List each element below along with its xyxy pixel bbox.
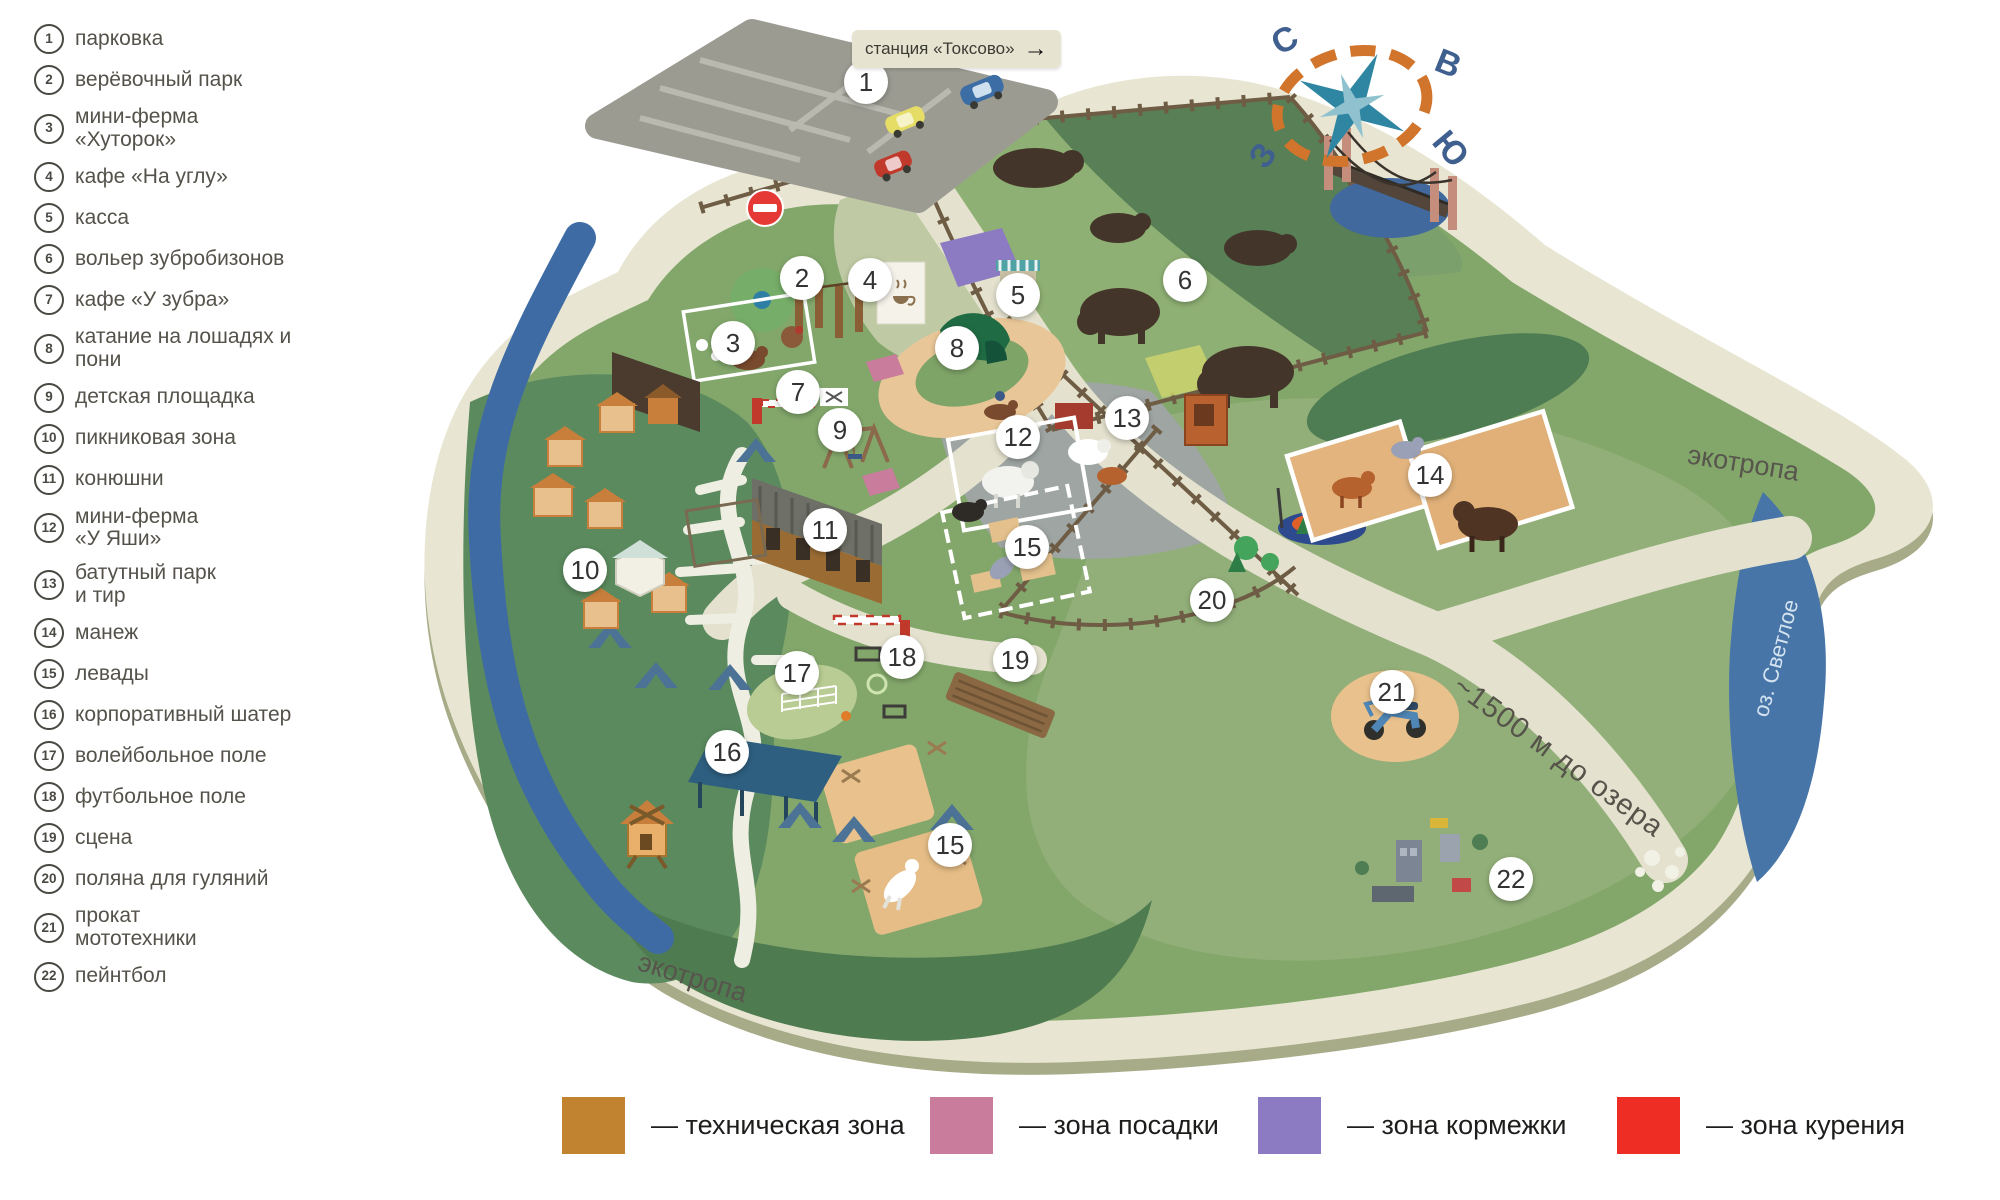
map-marker-6: 6 [1163, 258, 1207, 302]
map-marker-12: 12 [996, 415, 1040, 459]
zone-color-swatch [1258, 1097, 1321, 1154]
compass-north: С [1265, 18, 1305, 63]
map-marker-10: 10 [563, 548, 607, 592]
map-marker-15: 15 [1005, 525, 1049, 569]
map-canvas: С В З Ю экотропа экотропа оз. Светлое ~1… [0, 0, 2000, 1200]
map-marker-13: 13 [1105, 396, 1149, 440]
map-marker-4: 4 [848, 258, 892, 302]
map-marker-21: 21 [1370, 670, 1414, 714]
arrow-right-icon: → [1024, 37, 1048, 61]
map-marker-3: 3 [711, 321, 755, 365]
station-sign: станция «Токсово» → [852, 30, 1061, 68]
zone-legend-item-2: — зона посадки [930, 1097, 1219, 1154]
map-marker-11: 11 [803, 508, 847, 552]
zone-color-swatch [1617, 1097, 1680, 1154]
map-marker-16: 16 [705, 730, 749, 774]
zone-legend-item-4: — зона курения [1617, 1097, 1905, 1154]
map-marker-15: 15 [928, 823, 972, 867]
zone-legend-item-1: — техническая зона [562, 1097, 905, 1154]
map-marker-2: 2 [780, 256, 824, 300]
map-marker-8: 8 [935, 326, 979, 370]
station-sign-label: станция «Токсово» [865, 39, 1015, 59]
zone-legend-item-3: — зона кормежки [1258, 1097, 1566, 1154]
no-entry-sign [747, 190, 783, 226]
map-marker-19: 19 [993, 638, 1037, 682]
map-marker-5: 5 [996, 273, 1040, 317]
map-marker-17: 17 [775, 651, 819, 695]
map-marker-9: 9 [818, 408, 862, 452]
zone-color-swatch [562, 1097, 625, 1154]
compass-east: В [1430, 42, 1467, 86]
map-marker-18: 18 [880, 635, 924, 679]
zone-label: — зона кормежки [1347, 1110, 1566, 1141]
map-marker-14: 14 [1408, 453, 1452, 497]
map-marker-22: 22 [1489, 857, 1533, 901]
zone-label: — техническая зона [651, 1110, 905, 1141]
zone-label: — зона посадки [1019, 1110, 1219, 1141]
map-marker-7: 7 [776, 370, 820, 414]
map-marker-20: 20 [1190, 578, 1234, 622]
zone-color-swatch [930, 1097, 993, 1154]
zone-label: — зона курения [1706, 1110, 1905, 1141]
park-map-screenshot: 1парковка2верёвочный парк3мини-ферма «Ху… [0, 0, 2000, 1200]
